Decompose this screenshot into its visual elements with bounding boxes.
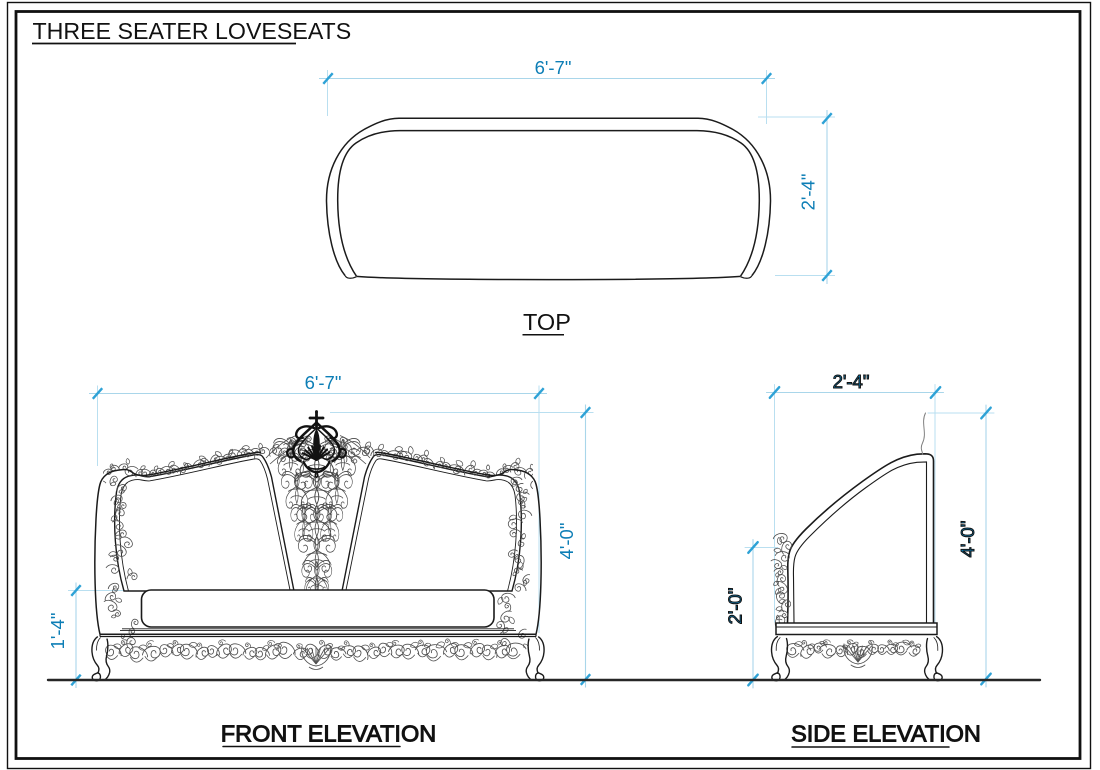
- svg-text:SIDE ELEVATION: SIDE ELEVATION: [791, 721, 981, 747]
- svg-text:4'-0": 4'-0": [556, 523, 577, 560]
- svg-text:FRONT ELEVATION: FRONT ELEVATION: [221, 721, 436, 747]
- svg-text:1'-4": 1'-4": [47, 613, 68, 650]
- svg-text:2'-0": 2'-0": [725, 588, 746, 625]
- svg-text:6'-7": 6'-7": [535, 57, 572, 78]
- svg-text:THREE SEATER LOVESEATS: THREE SEATER LOVESEATS: [33, 18, 352, 44]
- svg-text:2'-4": 2'-4": [833, 371, 870, 392]
- svg-text:6'-7": 6'-7": [305, 372, 342, 393]
- svg-text:TOP: TOP: [523, 309, 571, 335]
- svg-text:2'-4": 2'-4": [798, 174, 819, 211]
- svg-text:4'-0": 4'-0": [957, 521, 978, 558]
